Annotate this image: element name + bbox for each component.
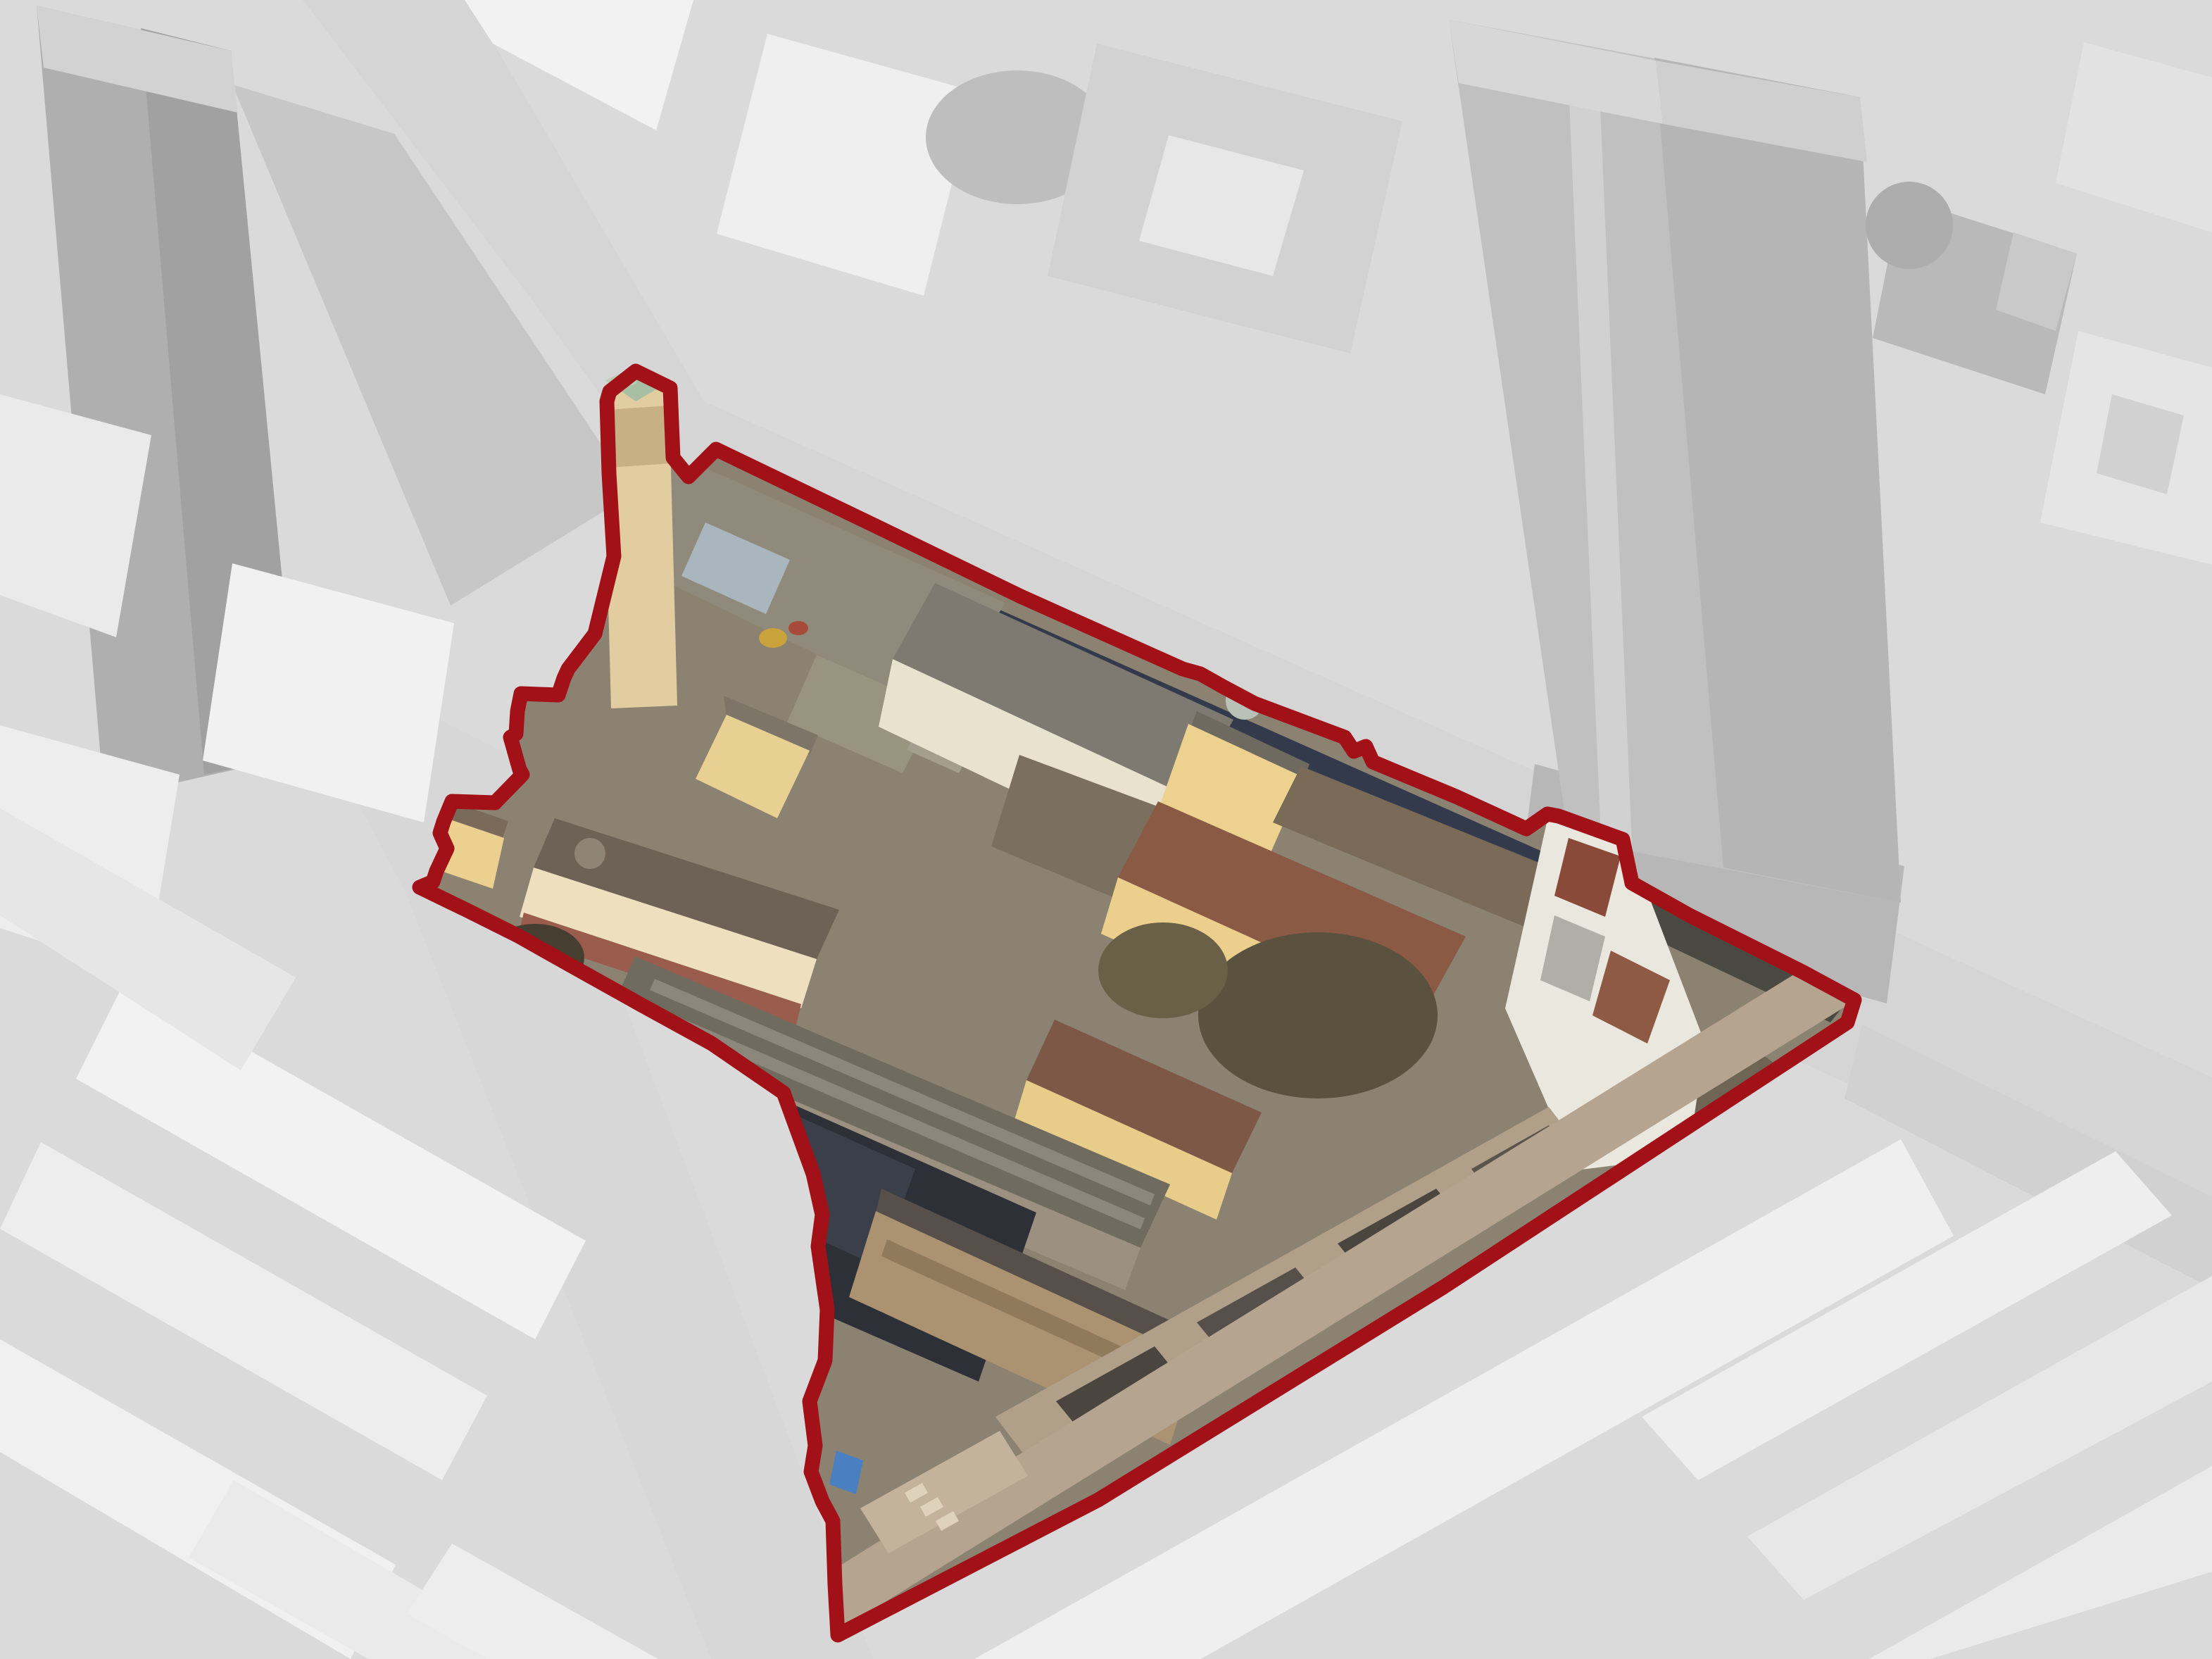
cream-building-dome (574, 838, 605, 869)
aerial-map-svg (0, 0, 2212, 1659)
playground-tarp-1 (759, 628, 787, 648)
aerial-photo-map (0, 0, 2212, 1659)
playground-tarp-2 (788, 621, 808, 635)
courtyard-trees-1 (1198, 932, 1438, 1098)
courtyard-trees-2 (1098, 922, 1228, 1018)
church-tower-louvres (607, 406, 671, 468)
